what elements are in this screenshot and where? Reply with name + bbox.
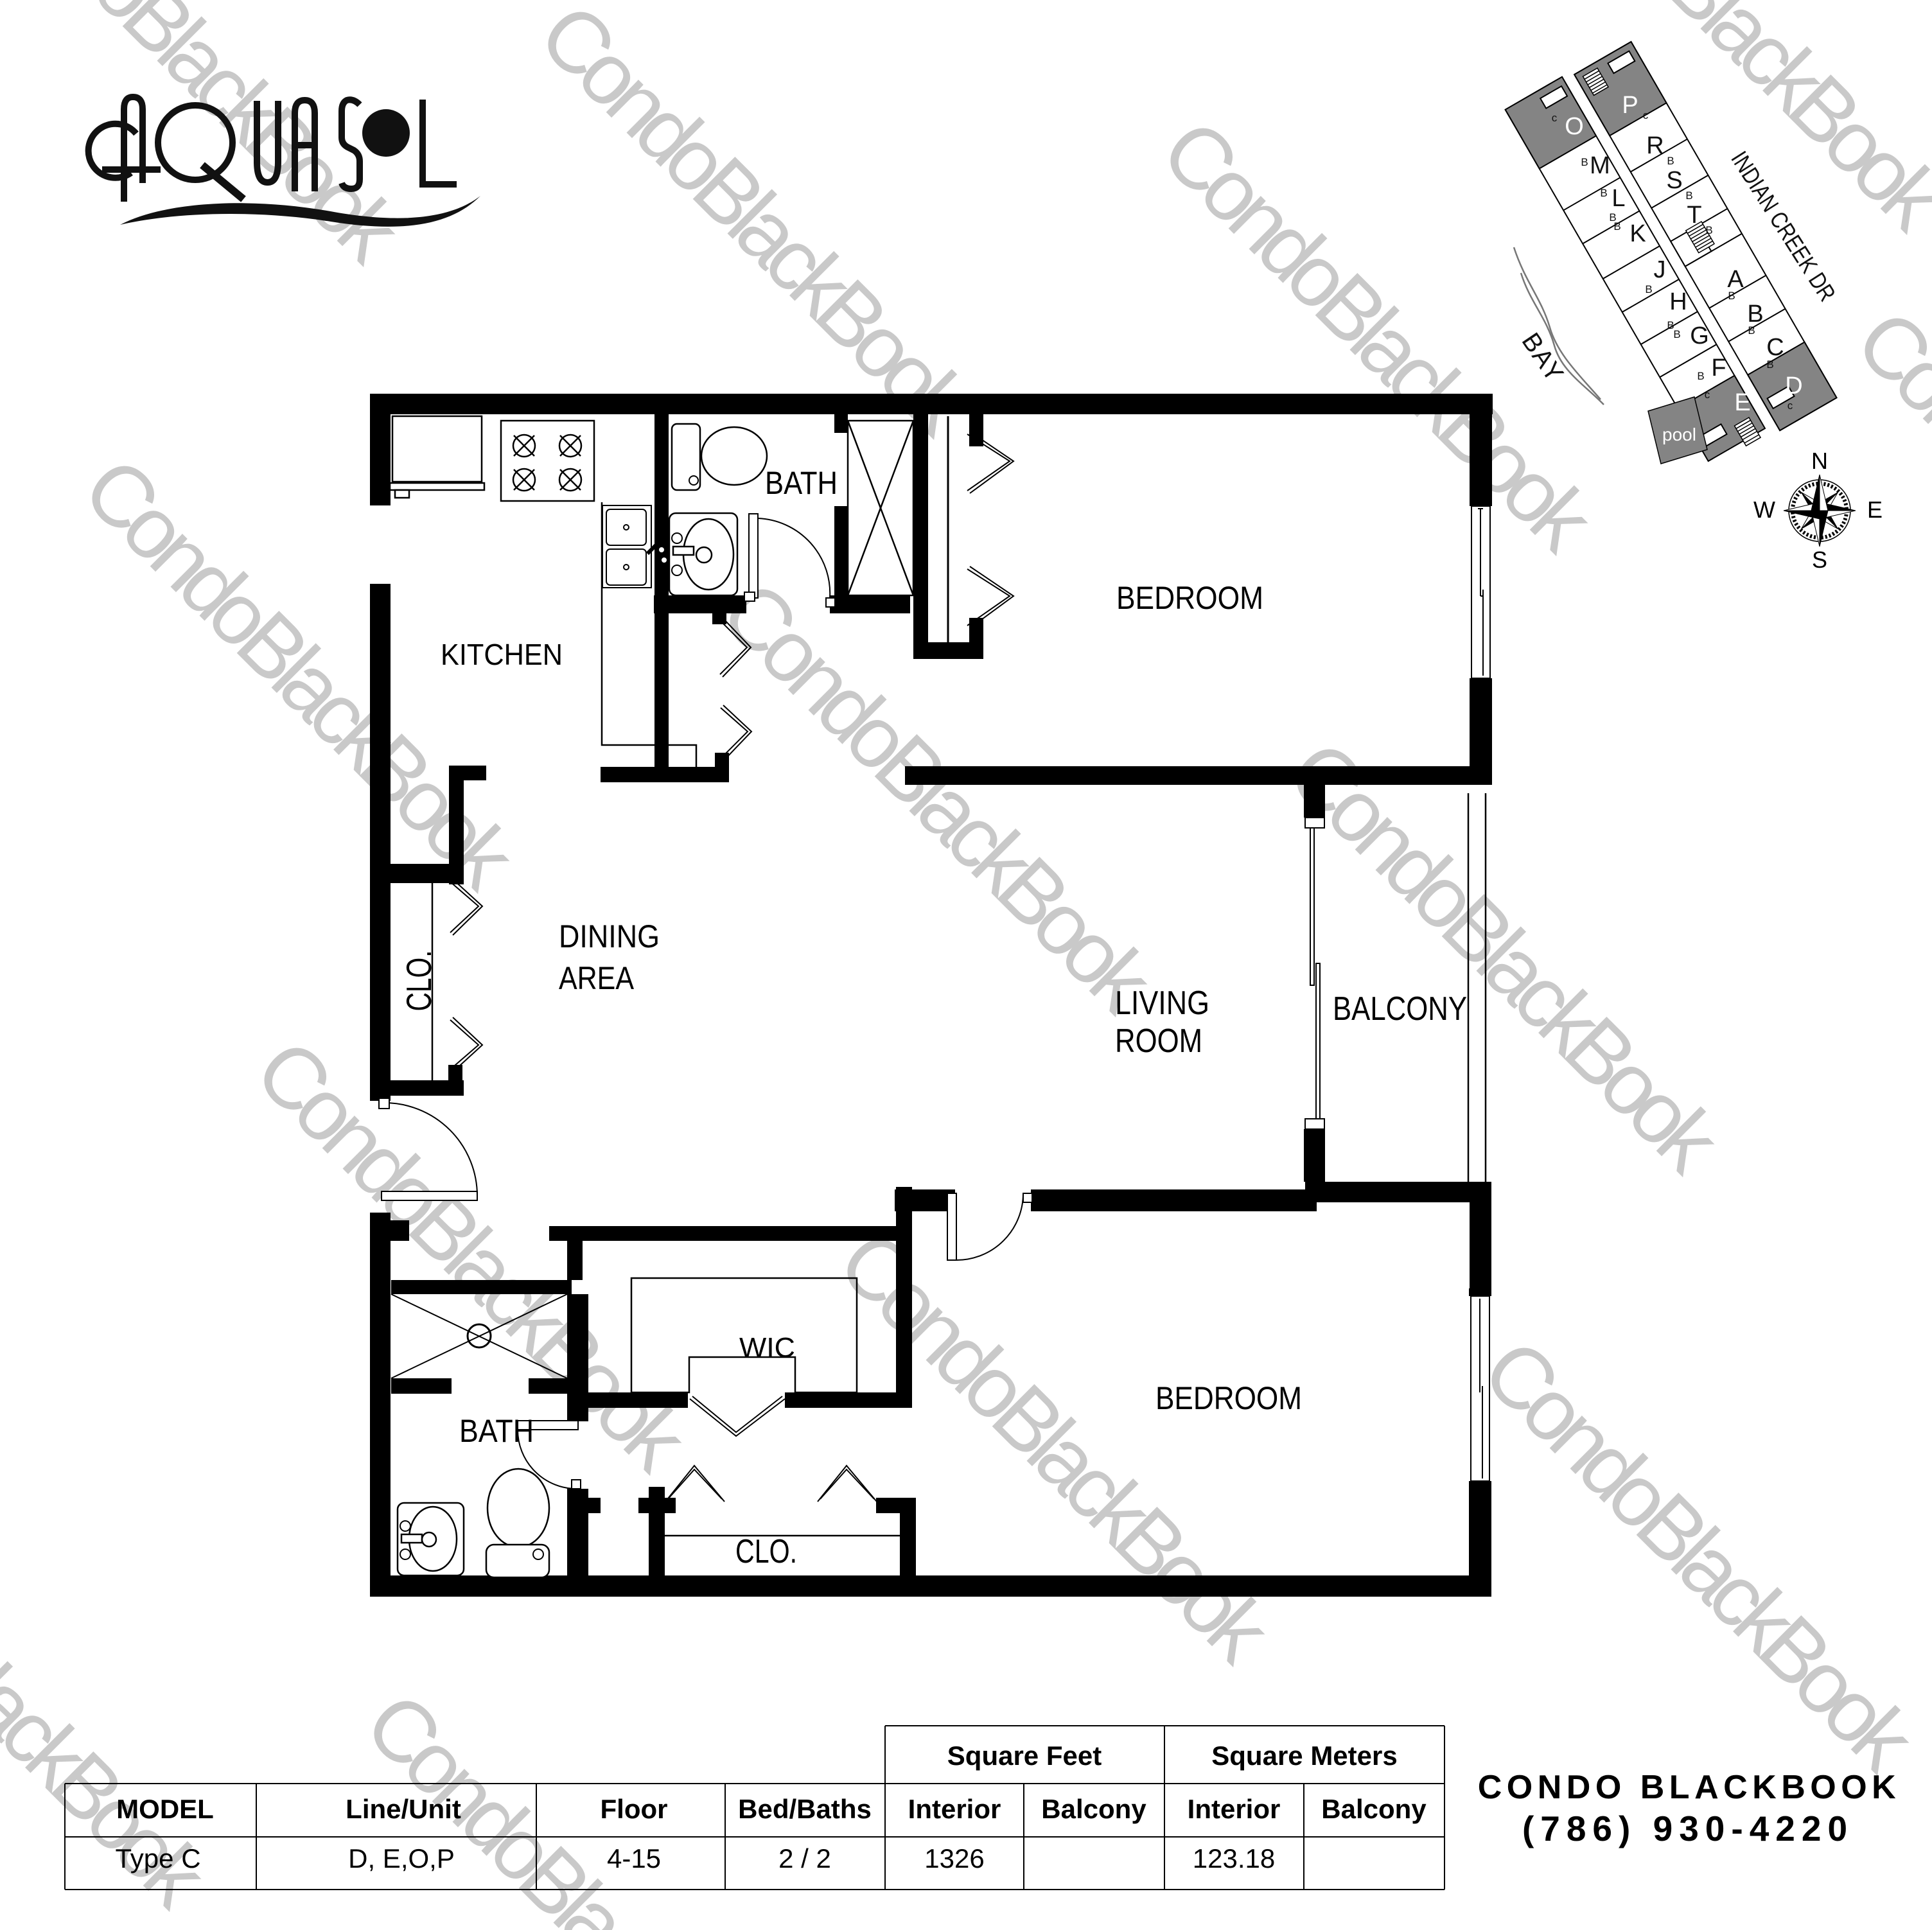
svg-text:P: P <box>1622 92 1638 119</box>
svg-text:B: B <box>1667 155 1674 167</box>
svg-text:WIC: WIC <box>739 1332 795 1364</box>
svg-text:B: B <box>1748 324 1755 337</box>
svg-text:G: G <box>1690 322 1709 349</box>
svg-text:LIVING: LIVING <box>1115 985 1209 1022</box>
svg-text:DINING: DINING <box>559 918 660 954</box>
svg-text:M: M <box>1590 152 1610 179</box>
svg-text:4-15: 4-15 <box>607 1843 661 1873</box>
svg-text:A: A <box>1727 266 1744 293</box>
svg-text:B: B <box>1581 156 1588 168</box>
svg-text:BEDROOM: BEDROOM <box>1155 1380 1302 1416</box>
svg-text:123.18: 123.18 <box>1193 1843 1275 1873</box>
svg-text:S: S <box>1812 547 1827 573</box>
svg-text:W: W <box>1753 496 1775 523</box>
svg-text:B: B <box>1697 370 1704 382</box>
svg-text:BATH: BATH <box>765 465 838 501</box>
svg-text:J: J <box>1654 256 1666 283</box>
svg-text:R: R <box>1646 132 1664 159</box>
svg-text:AREA: AREA <box>559 960 635 996</box>
svg-text:B: B <box>1645 283 1652 295</box>
svg-text:2 / 2: 2 / 2 <box>778 1843 831 1873</box>
svg-text:B: B <box>1728 290 1735 302</box>
svg-text:Interior: Interior <box>1188 1794 1281 1824</box>
svg-text:KITCHEN: KITCHEN <box>441 638 563 671</box>
svg-text:BEDROOM: BEDROOM <box>1116 580 1263 616</box>
svg-text:Balcony: Balcony <box>1041 1794 1146 1824</box>
svg-text:B: B <box>1673 328 1680 340</box>
svg-text:F: F <box>1711 355 1726 382</box>
svg-text:E: E <box>1867 496 1883 523</box>
svg-text:c: c <box>1705 389 1710 401</box>
svg-text:ROOM: ROOM <box>1115 1022 1202 1060</box>
svg-text:K: K <box>1629 220 1646 247</box>
svg-text:CONDO BLACKBOOK: CONDO BLACKBOOK <box>1478 1769 1901 1806</box>
svg-text:CLO.: CLO. <box>735 1533 797 1570</box>
svg-text:B: B <box>1685 189 1692 202</box>
svg-text:E: E <box>1734 389 1750 416</box>
svg-text:Type C: Type C <box>115 1843 200 1873</box>
svg-text:Bed/Baths: Bed/Baths <box>738 1794 872 1824</box>
svg-text:Balcony: Balcony <box>1321 1794 1427 1824</box>
svg-text:(786) 930-4220: (786) 930-4220 <box>1522 1809 1854 1848</box>
svg-text:Square Meters: Square Meters <box>1211 1741 1397 1771</box>
svg-text:c: c <box>1643 109 1649 121</box>
svg-text:D, E,O,P: D, E,O,P <box>348 1843 455 1873</box>
svg-text:Line/Unit: Line/Unit <box>346 1794 461 1824</box>
svg-text:H: H <box>1669 288 1687 315</box>
svg-text:1326: 1326 <box>924 1843 984 1873</box>
svg-text:MODEL: MODEL <box>116 1794 214 1824</box>
svg-text:B: B <box>1600 187 1607 199</box>
svg-text:O: O <box>1565 113 1584 140</box>
svg-text:B: B <box>1613 220 1620 232</box>
svg-text:Floor: Floor <box>601 1794 668 1824</box>
svg-text:B: B <box>1705 224 1712 236</box>
svg-text:B: B <box>1766 358 1773 371</box>
svg-text:B: B <box>1747 301 1763 328</box>
svg-text:pool: pool <box>1662 425 1696 444</box>
svg-text:C: C <box>1766 334 1784 361</box>
svg-text:BALCONY: BALCONY <box>1333 990 1467 1028</box>
svg-text:CLO.: CLO. <box>399 951 439 1012</box>
svg-text:c: c <box>1787 399 1793 412</box>
svg-text:D: D <box>1785 373 1802 399</box>
svg-text:T: T <box>1687 202 1701 229</box>
svg-text:BATH: BATH <box>459 1413 534 1449</box>
svg-text:L: L <box>1611 185 1625 212</box>
svg-text:Square Feet: Square Feet <box>947 1741 1102 1771</box>
svg-text:S: S <box>1666 167 1682 194</box>
svg-text:N: N <box>1811 448 1828 474</box>
svg-text:c: c <box>1552 112 1558 124</box>
svg-text:Interior: Interior <box>908 1794 1001 1824</box>
